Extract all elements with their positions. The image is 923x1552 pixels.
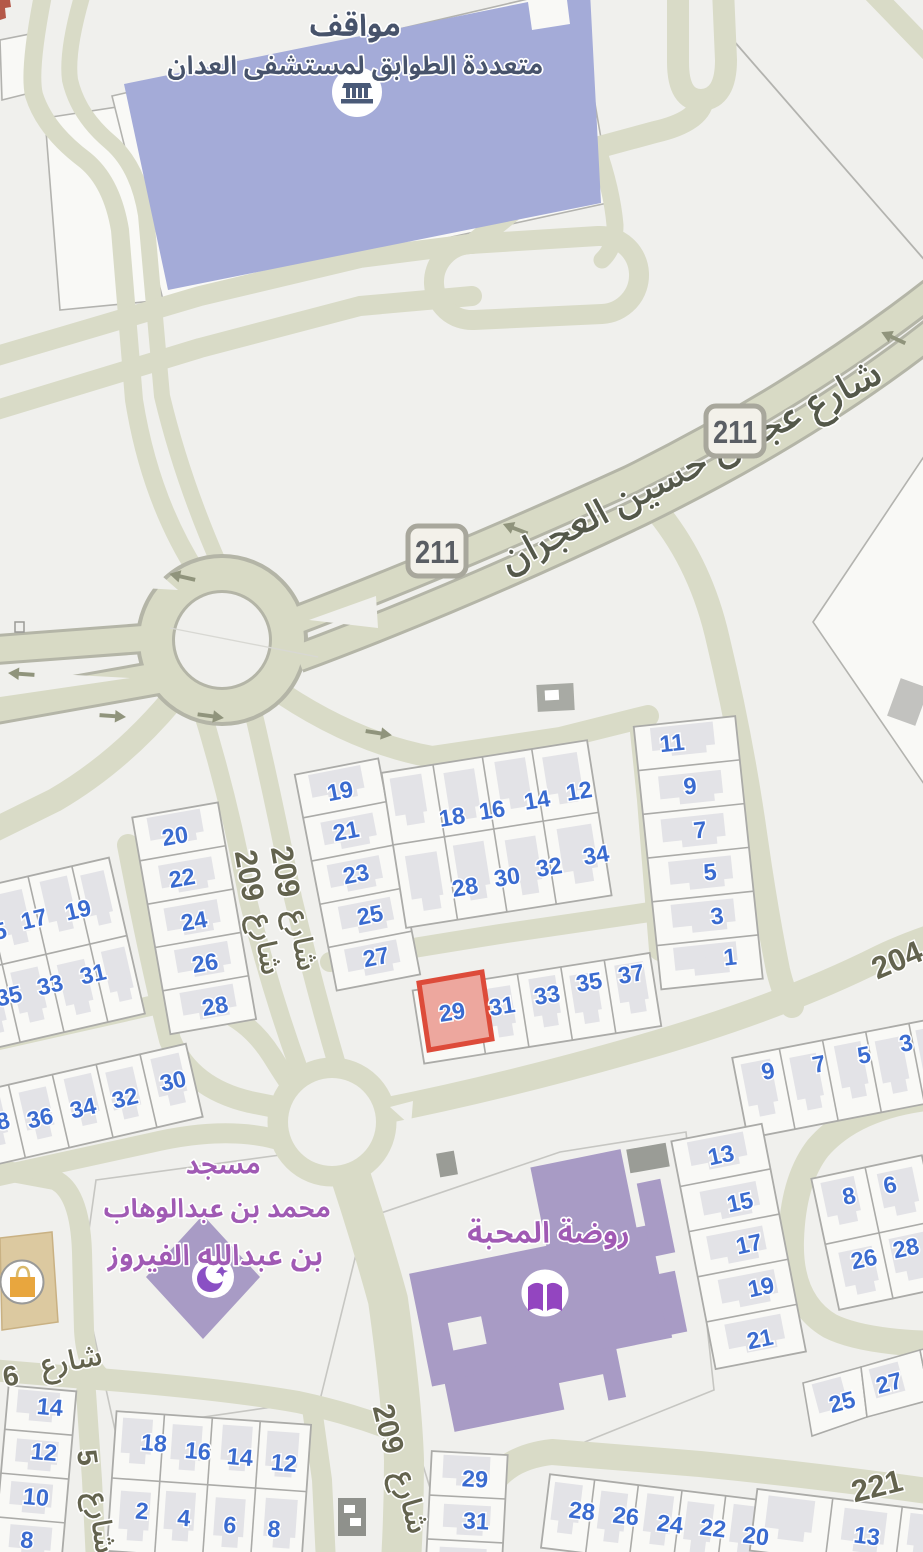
svg-text:30: 30 (492, 862, 522, 892)
svg-text:20: 20 (741, 1522, 770, 1551)
svg-text:4: 4 (176, 1504, 191, 1531)
svg-text:19: 19 (325, 776, 356, 807)
svg-text:3: 3 (709, 902, 725, 929)
svg-text:32: 32 (534, 852, 564, 882)
svg-text:21: 21 (745, 1324, 776, 1355)
svg-text:14: 14 (226, 1443, 254, 1471)
svg-text:25: 25 (355, 900, 386, 931)
svg-text:28: 28 (200, 991, 230, 1021)
svg-text:26: 26 (849, 1244, 880, 1275)
svg-text:11: 11 (658, 729, 685, 757)
svg-text:8: 8 (266, 1515, 281, 1542)
svg-text:211: 211 (713, 414, 757, 450)
svg-text:211: 211 (415, 534, 459, 570)
svg-text:31: 31 (462, 1507, 489, 1534)
svg-text:2: 2 (134, 1497, 149, 1524)
svg-text:28: 28 (567, 1497, 596, 1526)
svg-text:7: 7 (692, 816, 708, 843)
svg-text:5: 5 (702, 858, 718, 885)
svg-text:31: 31 (487, 991, 517, 1021)
svg-text:18: 18 (437, 802, 467, 832)
svg-text:29: 29 (461, 1465, 488, 1492)
svg-text:13: 13 (706, 1140, 737, 1171)
svg-text:16: 16 (477, 795, 507, 825)
svg-text:15: 15 (725, 1187, 756, 1218)
svg-text:13: 13 (852, 1522, 881, 1551)
svg-text:33: 33 (532, 980, 562, 1010)
svg-text:28: 28 (891, 1233, 922, 1264)
svg-text:22: 22 (167, 863, 197, 893)
svg-text:37: 37 (616, 959, 646, 989)
svg-text:8: 8 (19, 1526, 34, 1552)
svg-text:17: 17 (734, 1229, 765, 1260)
svg-text:35: 35 (574, 967, 604, 997)
svg-text:26: 26 (611, 1502, 640, 1531)
svg-text:9: 9 (682, 772, 698, 799)
svg-text:12: 12 (564, 776, 594, 806)
svg-text:24: 24 (655, 1510, 684, 1539)
svg-text:18: 18 (140, 1429, 168, 1457)
svg-text:21: 21 (331, 816, 362, 847)
svg-text:28: 28 (450, 872, 480, 902)
svg-text:22: 22 (698, 1514, 727, 1543)
svg-text:26: 26 (190, 948, 220, 978)
svg-text:23: 23 (341, 859, 372, 890)
svg-text:6: 6 (222, 1511, 237, 1538)
svg-text:29: 29 (437, 997, 467, 1027)
svg-text:10: 10 (22, 1483, 50, 1511)
svg-text:27: 27 (361, 942, 392, 973)
svg-text:1: 1 (722, 943, 738, 970)
svg-text:12: 12 (270, 1449, 298, 1477)
svg-text:16: 16 (184, 1437, 212, 1465)
svg-text:20: 20 (160, 821, 190, 851)
svg-text:34: 34 (581, 840, 611, 870)
svg-text:14: 14 (522, 785, 552, 815)
svg-text:24: 24 (179, 906, 209, 936)
svg-text:12: 12 (30, 1438, 58, 1466)
svg-text:19: 19 (746, 1272, 777, 1303)
svg-text:14: 14 (36, 1393, 64, 1421)
